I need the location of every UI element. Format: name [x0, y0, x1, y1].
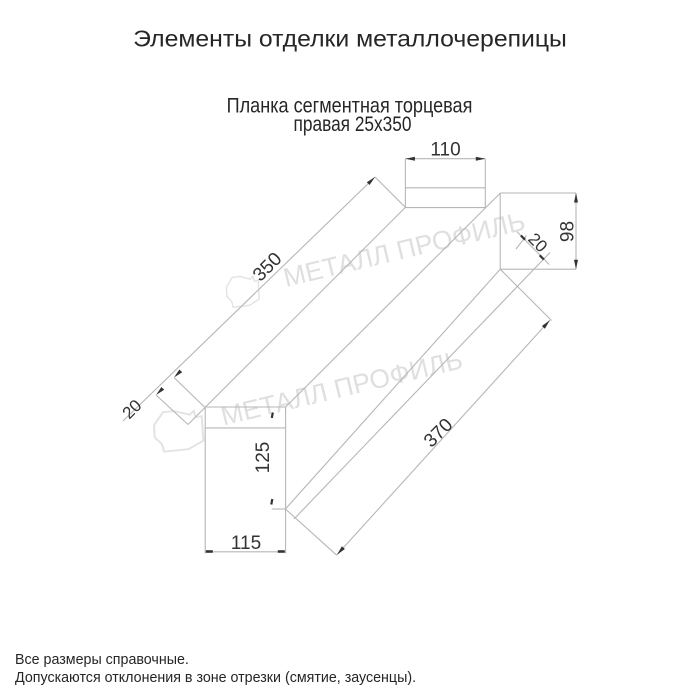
svg-text:правая 25x350: правая 25x350	[294, 114, 412, 137]
svg-text:Допускаются отклонения в зоне: Допускаются отклонения в зоне отрезки (с…	[15, 670, 416, 686]
svg-text:110: 110	[430, 140, 460, 161]
svg-text:98: 98	[558, 221, 579, 242]
svg-text:115: 115	[231, 533, 261, 554]
svg-text:125: 125	[253, 442, 274, 474]
svg-text:Все размеры справочные.: Все размеры справочные.	[15, 652, 189, 668]
svg-text:Элементы отделки металлочерепи: Элементы отделки металлочерепицы	[133, 26, 567, 52]
